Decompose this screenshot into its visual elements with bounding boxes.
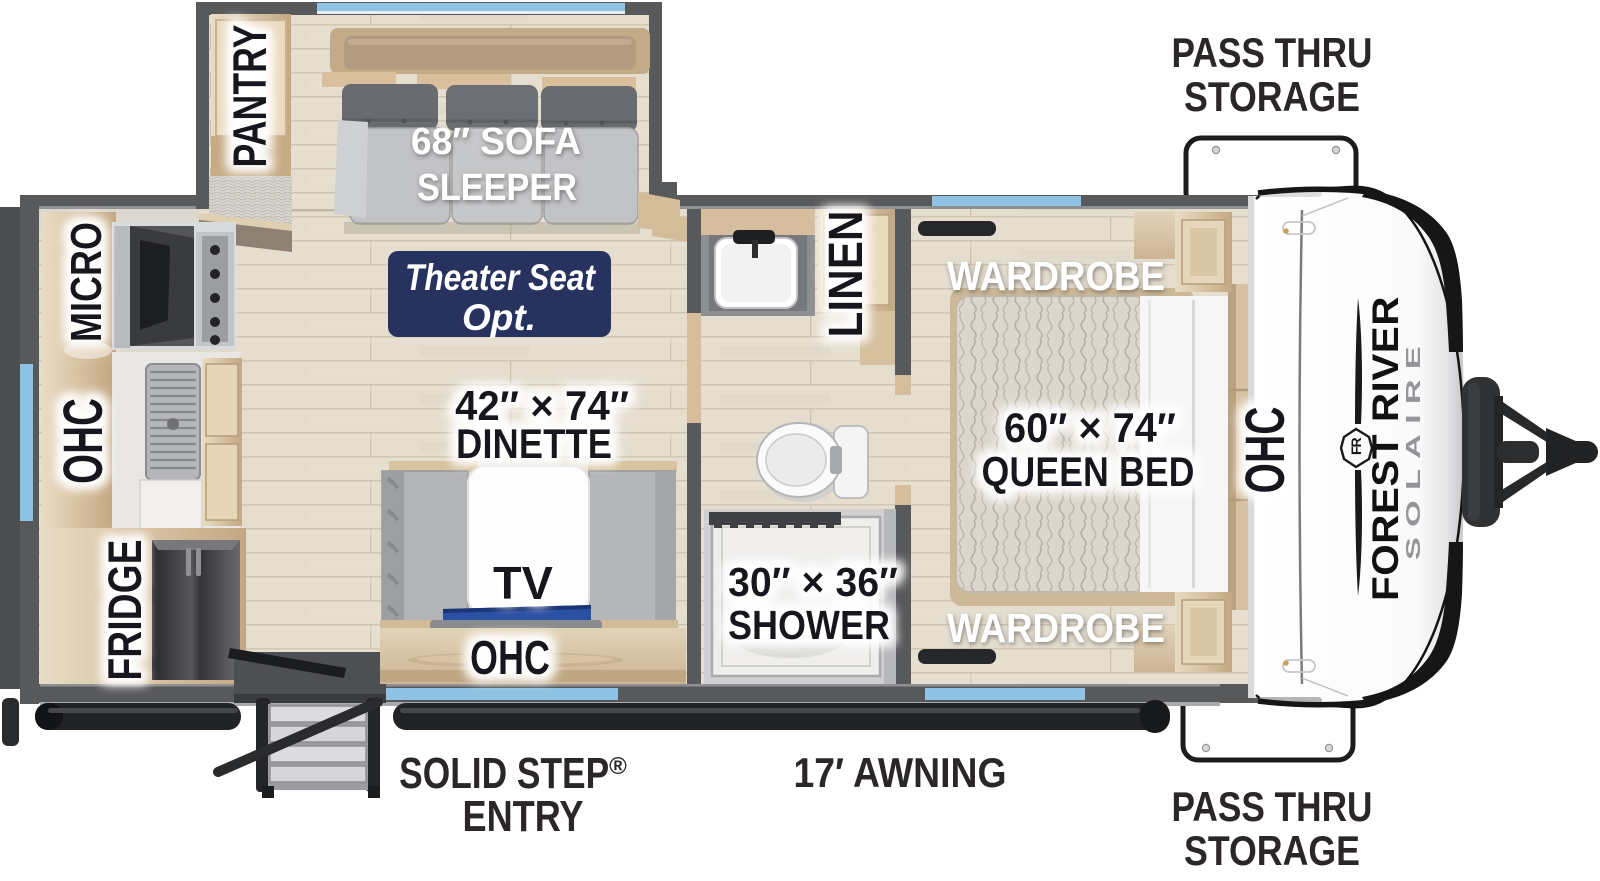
svg-text:PASS THRU: PASS THRU (1172, 29, 1373, 76)
svg-text:QUEEN BED: QUEEN BED (982, 448, 1195, 495)
svg-text:OHC: OHC (470, 632, 550, 685)
svg-text:WARDROBE: WARDROBE (947, 253, 1165, 299)
svg-text:SOLID STEP®: SOLID STEP® (399, 749, 627, 798)
svg-text:68″ SOFA: 68″ SOFA (411, 121, 581, 163)
svg-text:TV: TV (493, 557, 553, 609)
svg-text:DINETTE: DINETTE (456, 420, 612, 467)
svg-text:FOREST RIVER: FOREST RIVER (1365, 296, 1406, 601)
svg-text:MICRO: MICRO (62, 222, 111, 342)
svg-text:PANTRY: PANTRY (223, 25, 276, 168)
svg-text:OHC: OHC (51, 398, 114, 484)
svg-text:OHC: OHC (1233, 407, 1296, 494)
svg-text:Opt.: Opt. (462, 297, 536, 338)
svg-text:WARDROBE: WARDROBE (947, 605, 1165, 651)
svg-text:SLEEPER: SLEEPER (417, 167, 577, 209)
svg-text:30″ × 36″: 30″ × 36″ (728, 559, 898, 605)
svg-text:SOLAIRE: SOLAIRE (1403, 336, 1425, 560)
svg-text:ENTRY: ENTRY (463, 792, 584, 841)
svg-text:17′ AWNING: 17′ AWNING (794, 749, 1007, 796)
svg-text:60″ × 74″: 60″ × 74″ (1004, 404, 1176, 451)
svg-text:STORAGE: STORAGE (1184, 827, 1360, 874)
svg-text:FR: FR (1348, 437, 1364, 455)
svg-text:SHOWER: SHOWER (728, 602, 890, 648)
svg-text:FRIDGE: FRIDGE (98, 540, 151, 681)
svg-text:PASS THRU: PASS THRU (1172, 783, 1373, 830)
svg-text:LINEN: LINEN (820, 211, 873, 338)
svg-text:STORAGE: STORAGE (1184, 73, 1360, 120)
svg-text:Theater Seat: Theater Seat (405, 257, 596, 298)
